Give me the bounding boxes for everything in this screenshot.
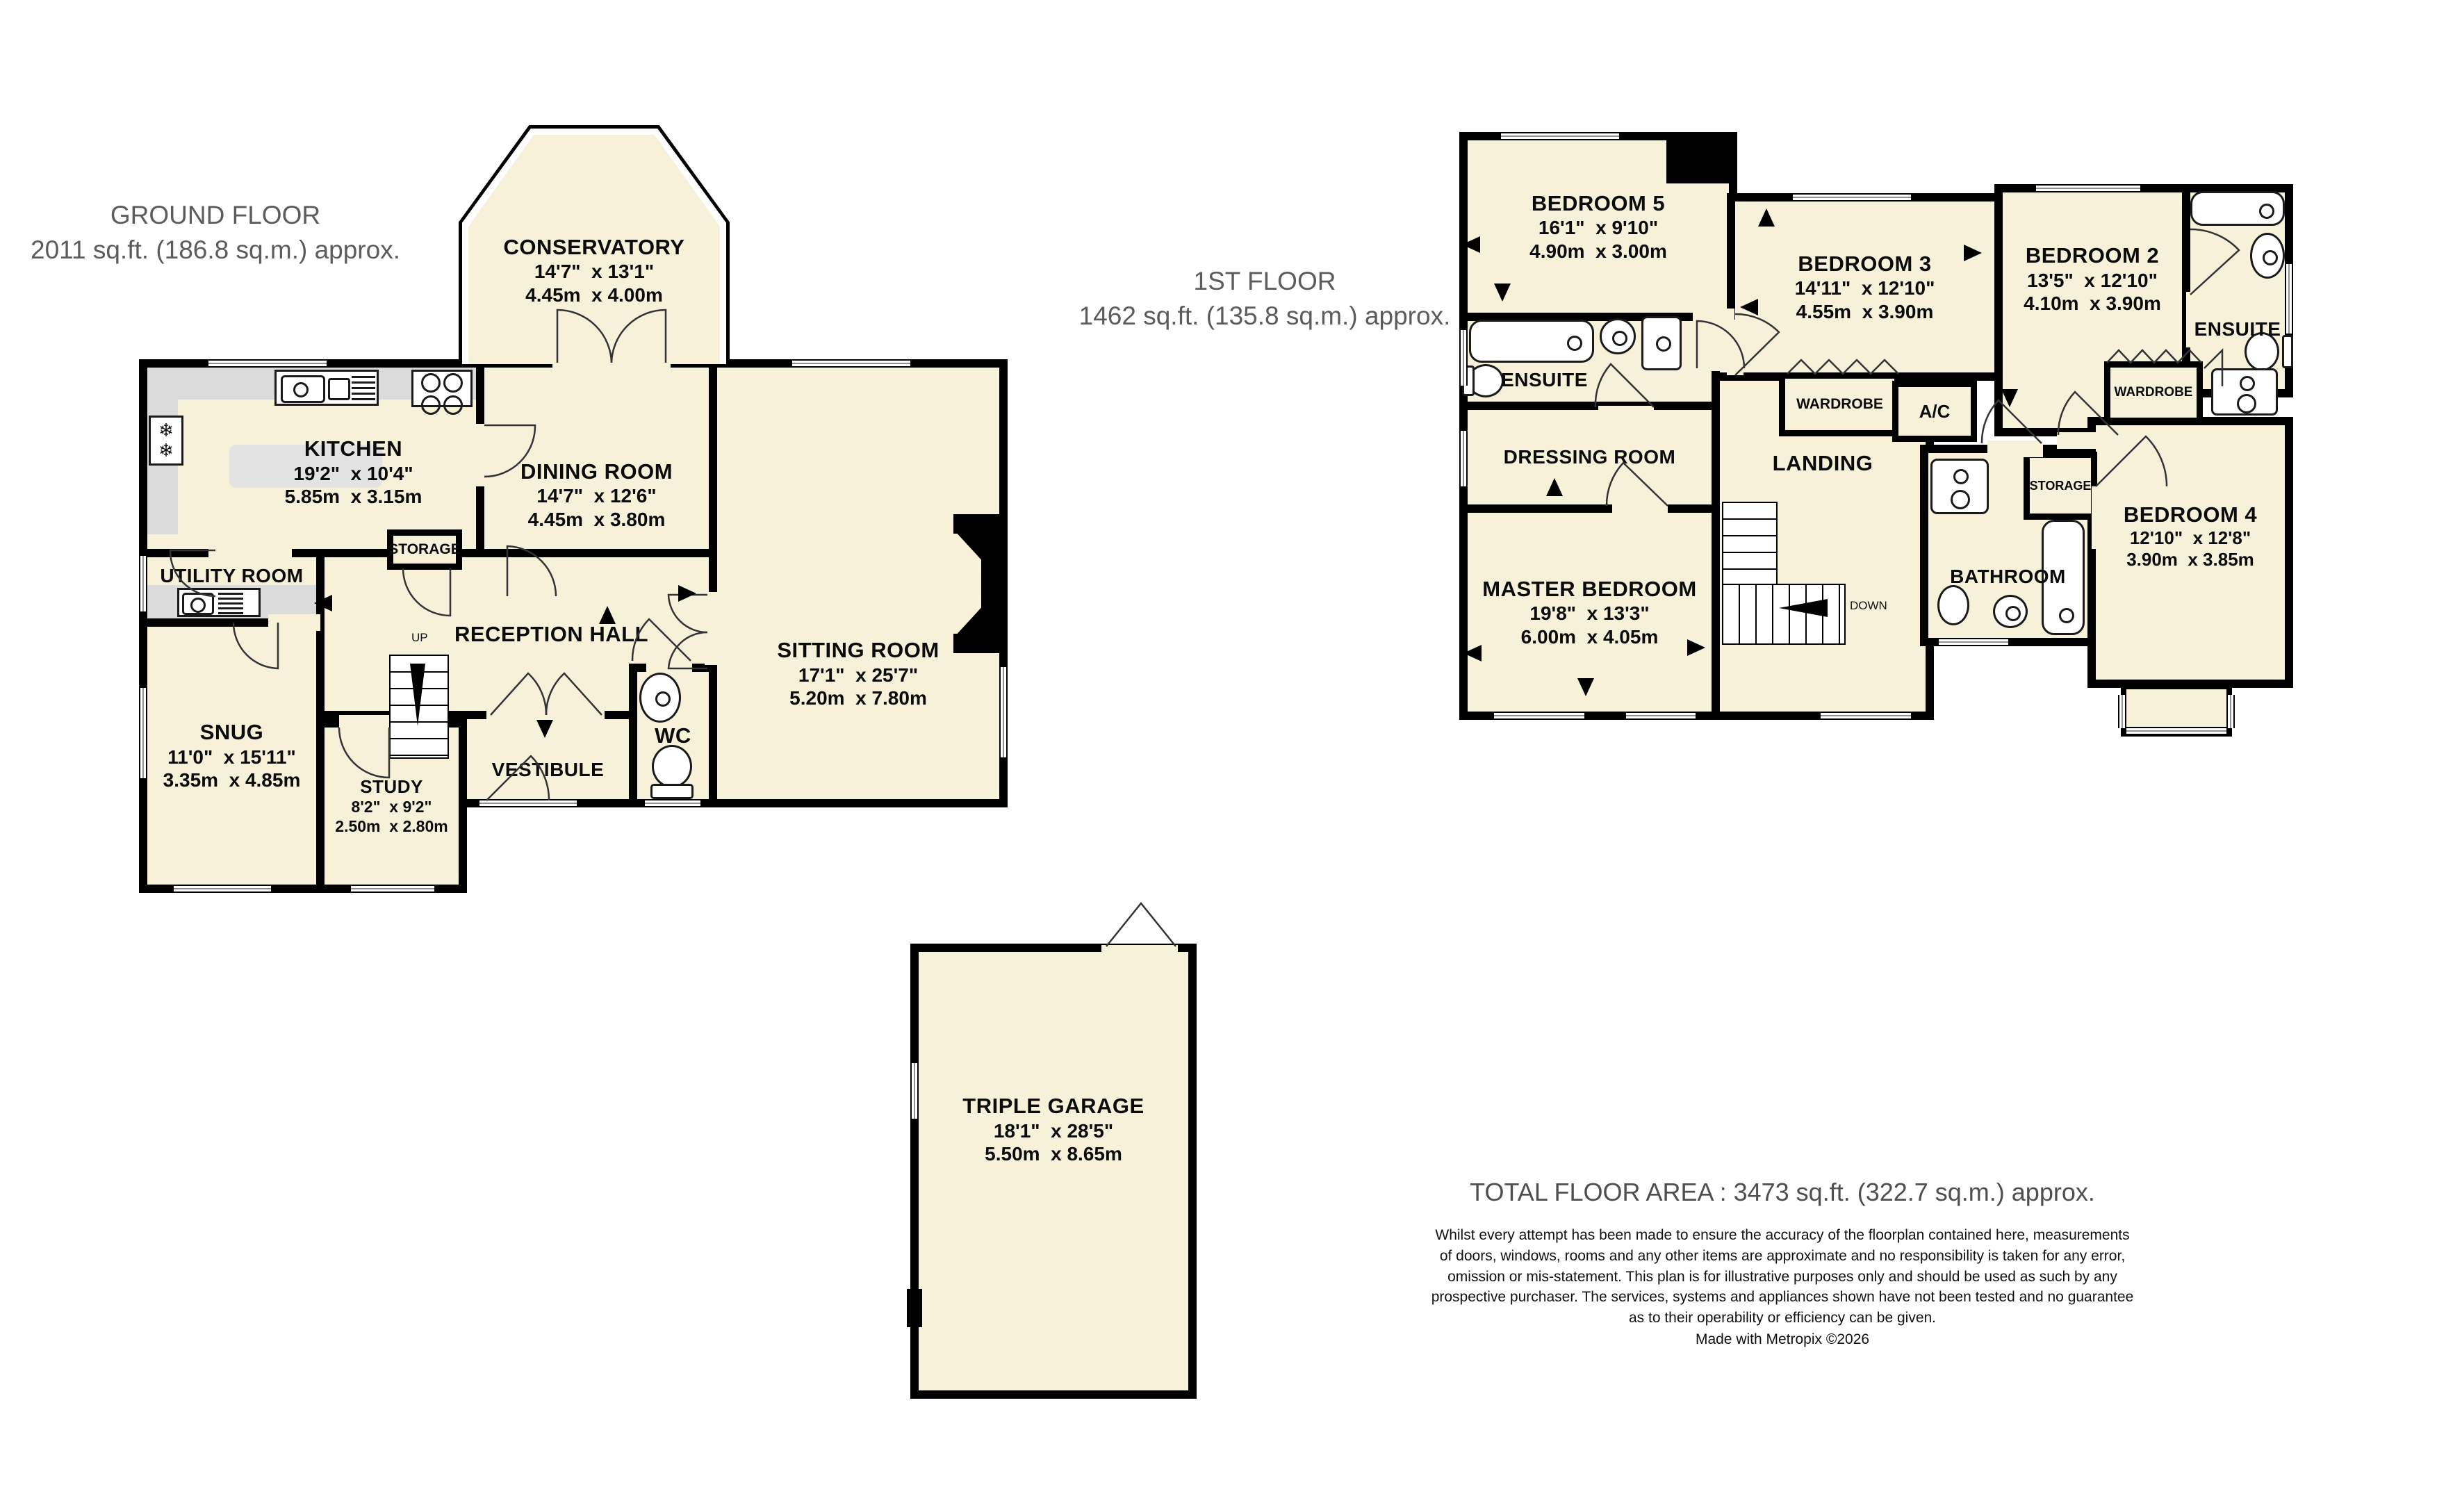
window — [479, 799, 577, 807]
door-gap — [2092, 486, 2108, 549]
room-dressing: DRESSING ROOM — [1459, 402, 1720, 513]
room-dim-imperial: 14'11" x 12'10" — [1795, 277, 1935, 300]
window — [1501, 132, 1619, 140]
room-label: DRESSING ROOM — [1504, 445, 1676, 469]
hob-icon — [411, 370, 473, 407]
room-label: UTILITY ROOM — [160, 564, 303, 588]
door-gap — [268, 614, 320, 631]
room-bed4: BEDROOM 4 12'10" x 12'8" 3.90m x 3.85m — [2087, 417, 2293, 688]
room-dim-metric: 4.45m x 4.00m — [525, 283, 663, 307]
window — [2036, 184, 2140, 192]
room-dim-imperial: 14'7" x 12'6" — [536, 484, 656, 508]
door-gap — [2057, 432, 2119, 449]
door-gap — [2186, 292, 2203, 347]
room-label: MASTER BEDROOM — [1482, 576, 1696, 602]
room-dim-metric: 4.90m x 3.00m — [1529, 240, 1667, 263]
door-gap — [208, 545, 292, 561]
sink-icon — [2211, 368, 2278, 416]
bath-icon — [2042, 520, 2085, 635]
room-dim-metric: 4.10m x 3.90m — [2024, 292, 2161, 315]
stairs-down-arrow — [1779, 599, 1828, 617]
room-dim-metric: 5.85m x 3.15m — [285, 485, 422, 509]
direction-arrow — [2001, 389, 2018, 407]
window — [1459, 330, 1468, 386]
direction-arrow — [1687, 639, 1705, 656]
window — [1939, 638, 2008, 646]
garage-wall-pier — [907, 1289, 922, 1327]
direction-arrow — [1577, 678, 1594, 696]
window — [139, 688, 147, 778]
room-dim-metric: 5.20m x 7.80m — [789, 687, 927, 710]
room-dim-metric: 4.55m x 3.90m — [1796, 300, 1934, 324]
window — [139, 556, 147, 611]
stairs-up-arrow — [410, 664, 425, 726]
direction-arrow — [1494, 283, 1511, 302]
ground-floor-title: GROUND FLOOR 2011 sq.ft. (186.8 sq.m.) a… — [21, 198, 410, 268]
room-garage: TRIPLE GARAGE 18'1" x 28'5" 5.50m x 8.65… — [910, 944, 1197, 1399]
window — [174, 885, 271, 893]
window — [351, 885, 434, 893]
door-gap — [339, 715, 392, 732]
direction-arrow — [678, 585, 696, 602]
room-dim-metric: 6.00m x 4.05m — [1521, 625, 1659, 649]
sink-icon — [1930, 459, 1989, 514]
room-dim-imperial: 12'10" x 12'8" — [2130, 527, 2251, 549]
room-dim-metric: 5.50m x 8.65m — [985, 1142, 1122, 1166]
window — [792, 359, 910, 368]
room-label: TRIPLE GARAGE — [962, 1093, 1144, 1119]
door-gap — [1612, 500, 1668, 517]
garage-window — [910, 1063, 919, 1119]
wc-toilet-icon — [652, 745, 692, 788]
room-dim-imperial: 14'7" x 13'1" — [534, 260, 654, 283]
room-label: RECEPTION HALL — [454, 621, 648, 647]
room-snug: SNUG 11'0" x 15'11" 3.35m x 4.85m — [139, 618, 325, 893]
closet-wardrobe-right: WARDROBE — [2104, 361, 2203, 424]
toilet-icon — [2245, 332, 2279, 371]
door-gap — [505, 587, 559, 611]
door-gap — [1987, 441, 2043, 457]
room-label: BEDROOM 5 — [1532, 190, 1665, 216]
total-floor-area: TOTAL FLOOR AREA : 3473 sq.ft. (322.7 sq… — [1320, 1178, 2245, 1207]
floorplan-page: { "ground": { "title": "GROUND FLOOR", "… — [0, 0, 2437, 1512]
direction-arrow — [1758, 208, 1775, 227]
room-label: ENSUITE — [1501, 368, 1588, 392]
window — [1459, 431, 1468, 486]
room-label: SITTING ROOM — [777, 637, 939, 663]
bath-icon — [1469, 320, 1594, 363]
door-gap — [552, 352, 671, 375]
garage-door-gap — [1101, 945, 1178, 952]
toilet-cistern — [2282, 335, 2293, 368]
stairs-down-label: DOWN — [1850, 599, 1887, 613]
door-gap — [705, 592, 721, 665]
window — [1626, 712, 1696, 720]
stairs-up-label: UP — [411, 631, 428, 645]
room-label: CONSERVATORY — [504, 234, 685, 260]
door-gap — [1727, 320, 1743, 375]
direction-arrow — [1462, 236, 1480, 253]
room-dim-imperial: 8'2" x 9'2" — [352, 798, 432, 817]
room-label: SNUG — [200, 719, 264, 745]
window — [2285, 264, 2293, 334]
closet-wardrobe-left: WARDROBE — [1779, 372, 1901, 436]
room-label: STORAGE — [2030, 479, 2092, 493]
wc-toilet-cistern — [650, 784, 694, 799]
chimney-block — [1666, 132, 1737, 183]
room-dim-imperial: 16'1" x 9'10" — [1538, 216, 1658, 240]
disclaimer-text: Whilst every attempt has been made to en… — [1320, 1225, 2245, 1329]
window — [2118, 695, 2126, 728]
room-dim-metric: 3.35m x 4.85m — [163, 769, 301, 792]
window — [208, 359, 327, 368]
window — [2126, 727, 2226, 735]
room-label: STORAGE — [388, 541, 460, 558]
door-gap — [476, 424, 493, 486]
closet-ac: A/C — [1892, 381, 1977, 442]
direction-arrow — [536, 720, 553, 738]
window — [1821, 712, 1911, 720]
fridge-icon: ❄❄ — [149, 416, 183, 466]
direction-arrow — [599, 606, 616, 624]
ground-floor-area: 2011 sq.ft. (186.8 sq.m.) approx. — [21, 233, 410, 268]
direction-arrow — [1740, 299, 1758, 315]
window — [1494, 712, 1584, 720]
footer: TOTAL FLOOR AREA : 3473 sq.ft. (322.7 sq… — [1320, 1178, 2245, 1348]
room-label: A/C — [1919, 401, 1951, 422]
wc-sink-icon — [639, 673, 681, 723]
direction-arrow — [1546, 478, 1563, 496]
toilet-icon — [1937, 585, 1969, 625]
sink-icon — [1641, 316, 1682, 370]
room-dim-imperial: 13'5" x 12'10" — [2027, 269, 2158, 293]
sink-icon — [2250, 233, 2285, 279]
room-dim-metric: 2.50m x 2.80m — [335, 817, 448, 837]
sink-icon — [1993, 595, 2028, 628]
kitchen-sink-icon — [274, 370, 379, 406]
window — [999, 667, 1008, 757]
utility-sink-icon — [177, 588, 261, 617]
first-floor-name: 1ST FLOOR — [1063, 264, 1466, 299]
room-dim-imperial: 18'1" x 28'5" — [994, 1119, 1113, 1143]
stairs-down-flight — [1722, 502, 1778, 585]
first-floor-area: 1462 sq.ft. (135.8 sq.m.) approx. — [1063, 299, 1466, 334]
room-label: BEDROOM 2 — [2026, 243, 2159, 268]
closet-storage-first: STORAGE — [2024, 452, 2097, 520]
credit-text: Made with Metropix ©2026 — [1320, 1331, 2245, 1348]
ground-floor-name: GROUND FLOOR — [21, 198, 410, 233]
room-dim-metric: 4.45m x 3.80m — [528, 508, 666, 532]
direction-arrow — [1964, 245, 1982, 261]
room-dim-metric: 3.90m x 3.85m — [2126, 549, 2254, 570]
room-label: BEDROOM 4 — [2124, 502, 2257, 527]
window — [645, 799, 700, 807]
room-dim-imperial: 17'1" x 25'7" — [798, 664, 918, 687]
first-floor-title: 1ST FLOOR 1462 sq.ft. (135.8 sq.m.) appr… — [1063, 264, 1466, 334]
window — [2226, 695, 2235, 728]
room-label: WARDROBE — [1796, 396, 1883, 413]
bath-icon — [2190, 191, 2285, 226]
direction-arrow — [314, 595, 332, 611]
door-gap — [1598, 406, 1654, 422]
room-label: STUDY — [360, 776, 423, 798]
room-label: BEDROOM 3 — [1798, 251, 1931, 277]
sink-icon — [1600, 318, 1636, 354]
room-label: VESTIBULE — [492, 758, 605, 782]
room-dim-imperial: 19'8" x 13'3" — [1529, 602, 1649, 625]
room-label: WARDROBE — [2115, 385, 2193, 400]
kitchen-island — [229, 445, 382, 488]
room-dim-imperial: 11'0" x 15'11" — [167, 746, 296, 769]
room-label: LANDING — [1773, 450, 1873, 476]
room-label: DINING ROOM — [520, 459, 673, 484]
closet-storage-ground: STORAGE — [387, 529, 462, 570]
window — [1793, 193, 1911, 202]
direction-arrow — [1463, 645, 1482, 661]
